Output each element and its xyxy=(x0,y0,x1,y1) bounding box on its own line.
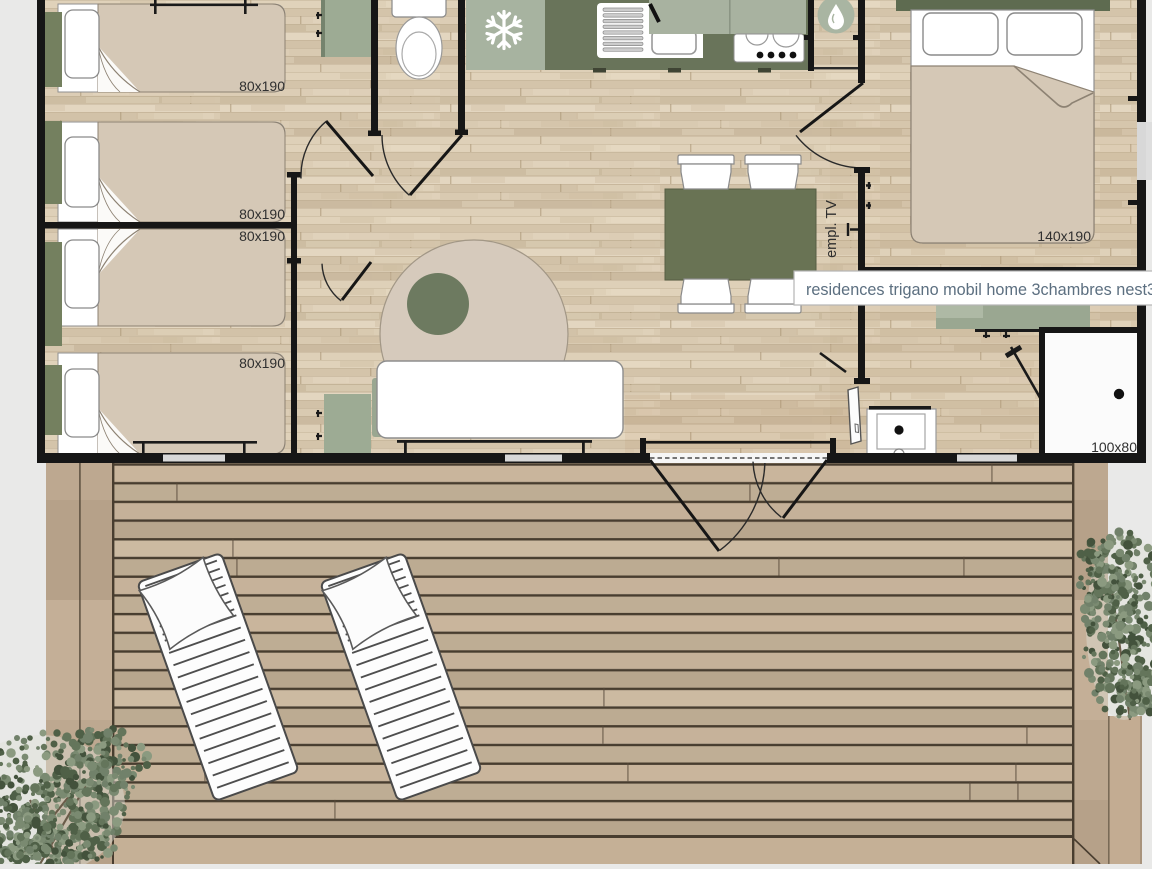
svg-text:80x190: 80x190 xyxy=(239,228,285,244)
svg-text:residences trigano mobil home: residences trigano mobil home 3chambres … xyxy=(806,280,1152,299)
svg-text:80x190: 80x190 xyxy=(239,206,285,222)
svg-text:80x190: 80x190 xyxy=(239,78,285,94)
svg-text:empl. TV: empl. TV xyxy=(824,200,840,258)
svg-text:140x190: 140x190 xyxy=(1037,228,1091,244)
svg-text:80x190: 80x190 xyxy=(239,355,285,371)
svg-text:100x80: 100x80 xyxy=(1091,439,1137,455)
